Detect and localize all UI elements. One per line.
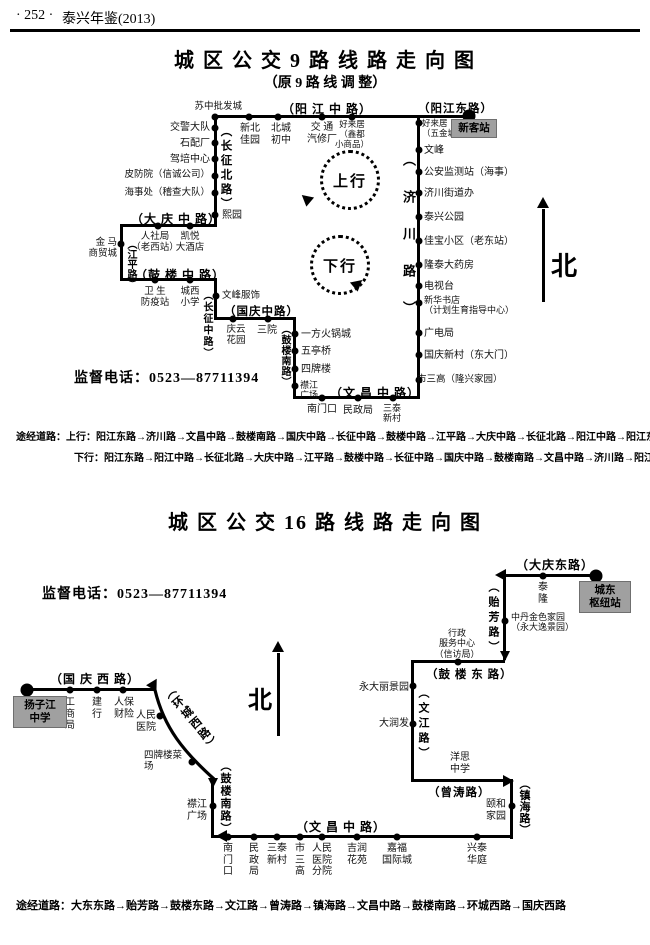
stop-shisangao-16: 市 三 高 [295, 843, 305, 878]
stop-jiafu-guojicheng: 嘉福 国际城 [382, 843, 412, 866]
stop-dot [275, 114, 282, 121]
stop-guangdianju: 广电局 [424, 328, 454, 340]
terminal-yangzijiang: 扬子江 中学 [13, 696, 67, 728]
yearbook-page: · 252 · 泰兴年鉴(2013) 城 区 公 交 9 路 线 路 走 向 图… [0, 0, 650, 945]
stop-dot [225, 834, 232, 841]
stop-dot [212, 125, 219, 132]
route9-title: 城 区 公 交 9 路 线 路 走 向 图 [0, 44, 650, 73]
stop-dot [292, 366, 299, 373]
road-label-zhenhai: （镇海路） [518, 778, 529, 836]
stop-dot [502, 618, 509, 625]
stop-renshejuj: 人社局 （老西站） [131, 232, 179, 254]
road-label-changzheng-north: （长征北路） [219, 125, 231, 212]
road-label-jichuan: （济川路） [402, 153, 415, 338]
stop-dot [189, 759, 196, 766]
stop-santai-xincun-16: 三泰 新村 [267, 843, 287, 866]
stop-haolaiju-xindu: 好来居 （鑫都 小商品） [335, 120, 369, 150]
stop-dot [416, 262, 423, 269]
stop-minzhengju-16: 民 政 局 [249, 843, 259, 878]
north-arrow-line [542, 209, 545, 302]
route9-note-up: 途经道路：上行：阳江东路→济川路→文昌中路→鼓楼南路→国庆中路→长征中路→鼓楼中… [16, 428, 650, 443]
stop-yihe-jiayuan: 颐和 家园 [486, 799, 506, 822]
stop-dot [416, 283, 423, 290]
stop-beicheng-chuzhong: 北城 初中 [271, 123, 291, 146]
stop-jinjiang-guangchang: 襟江 广场 [300, 380, 318, 401]
stop-minzhengju: 民政局 [343, 405, 373, 417]
stop-jinjiang-guangchang-16: 襟江 广场 [187, 799, 207, 822]
road-label-daqing-east: （大庆东路） [516, 556, 594, 573]
stop-xinhua-shudian: 新华书店 （计划生育指导中心） [424, 295, 514, 316]
stop-dot [251, 834, 258, 841]
stop-dot [94, 687, 101, 694]
stop-dot [474, 834, 481, 841]
stop-weisheng-fangyizhan: 卫 生 防疫站 [141, 287, 170, 309]
stop-dot [212, 190, 219, 197]
stop-dot [187, 277, 194, 284]
road-label-guoqing-west: （国 庆 西 路） [50, 670, 140, 687]
stop-dot [416, 190, 423, 197]
loop-up-circle: 上行 [320, 150, 380, 210]
stop-renmin-yiyuan-fenyuan: 人民 医院 分院 [312, 843, 332, 878]
stop-dot [390, 395, 397, 402]
stop-dot [187, 223, 194, 230]
terminal-dot [21, 684, 34, 697]
road-label-gulou-south-16: （鼓楼南路） [219, 760, 230, 835]
stop-haishichu: 海事处（稽查大队） [124, 188, 210, 199]
stop-sipailou: 四牌楼 [301, 364, 331, 376]
stop-dot [319, 834, 326, 841]
stop-dot [118, 241, 125, 248]
stop-dot [230, 316, 237, 323]
stop-taixing-gongyuan: 泰兴公园 [424, 212, 464, 224]
stop-dot [212, 212, 219, 219]
stop-dot [394, 834, 401, 841]
header-rule [10, 29, 640, 32]
route9-subtitle: （原 9 路 线 调 整） [0, 72, 650, 92]
stop-santai-xincun: 三泰 新村 [383, 403, 401, 424]
stop-suzhong-pifacheng: 苏中批发城 [194, 102, 242, 113]
stop-dianshitai: 电视台 [424, 281, 454, 293]
stop-sanyuan: 三院 [257, 325, 277, 337]
stop-zhongdan-jinse-jiayuan: 中丹金色家园 （永大逸景园） [511, 612, 574, 633]
route16-note: 途经道路：大东东路→贻芳路→鼓楼东路→文江路→曾涛路→镇海路→文昌中路→鼓楼南路… [16, 897, 566, 913]
stop-dot [509, 803, 516, 810]
route16-phone: 监督电话：0523—87711394 [42, 583, 227, 603]
road-label-changzheng-mid: （长征中路） [201, 290, 211, 359]
stop-wenfeng-fushi: 文峰服饰 [222, 291, 260, 302]
stop-dot [355, 395, 362, 402]
stop-nanmenkou: 南门口 [307, 404, 337, 416]
stop-jiabao-xiaoqu: 佳宝小区（老东站） [424, 236, 514, 248]
stop-dot [297, 834, 304, 841]
north-arrow-icon-16 [272, 641, 284, 652]
stop-dot [319, 114, 326, 121]
route9-phone: 监督电话：0523—87711394 [74, 367, 259, 387]
stop-xingtai-huating: 兴泰 华庭 [467, 843, 487, 866]
stop-dot [155, 223, 162, 230]
stop-yifang-huoguocheng: 一方火锅城 [301, 329, 351, 341]
route16-title: 城 区 公 交 16 路 线 路 走 向 图 [0, 506, 650, 535]
stop-kaiyue-dajiudian: 凯悦 大酒店 [176, 232, 205, 254]
stop-dot [213, 293, 220, 300]
road-label-daqing-mid: （大 庆 中 路） [131, 210, 221, 227]
book-title: 泰兴年鉴(2013) [62, 8, 155, 28]
stop-chengxi-xiaoxue: 城西 小学 [180, 287, 199, 309]
stop-dot [212, 156, 219, 163]
stop-dot [265, 316, 272, 323]
stop-wenfeng: 文峰 [424, 145, 444, 157]
stop-dot [210, 803, 217, 810]
stop-jichuan-jiedaoban: 济川街道办 [424, 188, 474, 200]
route-line-daqing-east [504, 574, 596, 577]
stop-jianhang: 建 行 [92, 697, 102, 720]
stop-jiaotong-qixiuchang: 交 通 汽修厂 [307, 122, 337, 145]
stop-jiaojing-dadui: 交警大队 [170, 122, 210, 134]
stop-renmin-yiyuan: 人民 医院 [136, 710, 156, 733]
stop-dot [120, 687, 127, 694]
corner-dot [212, 114, 219, 121]
stop-dot [540, 573, 547, 580]
route-line-jiangping [120, 224, 123, 281]
stop-dot [410, 683, 417, 690]
stop-dot [67, 687, 74, 694]
stop-tailong: 泰 隆 [538, 582, 548, 605]
stop-dot [416, 238, 423, 245]
road-label-zengtao: （曾涛路） [428, 784, 491, 800]
stop-dot [354, 834, 361, 841]
stop-xiyuan: 熙园 [222, 210, 242, 222]
stop-dot [455, 659, 462, 666]
road-label-gulou-south: （鼓楼南路） [279, 324, 289, 387]
road-label-wenchang-16: （文 昌 中 路） [296, 818, 386, 835]
page-number: · 252 · [16, 8, 53, 24]
stop-dot [157, 713, 164, 720]
stop-jinma-shangmaocheng: 金 马 商贸城 [88, 238, 117, 260]
stop-guoqing-xincun: 国庆新村（东大门） [424, 350, 514, 362]
stop-dot [292, 383, 299, 390]
route-line-zengtao [413, 779, 510, 782]
stop-qingyun-huayuan: 庆云 花园 [226, 325, 245, 347]
north-label: 北 [551, 246, 577, 283]
road-label-yangjiang-mid: （阳 江 中 路） [282, 100, 372, 117]
stop-dot [416, 169, 423, 176]
route-line-guoqing-west [27, 688, 156, 691]
stop-dot [274, 834, 281, 841]
stop-dot [319, 395, 326, 402]
stop-dot [246, 114, 253, 121]
terminal-xinkezhan: 新客站 [451, 119, 497, 138]
stop-dot [416, 300, 423, 307]
stop-wutingqiao: 五亭桥 [301, 346, 331, 358]
north-arrow-line-16 [277, 653, 280, 736]
stop-nanmenkou-16: 南 门 口 [223, 843, 233, 878]
stop-dot [416, 214, 423, 221]
stop-dot [152, 277, 159, 284]
loop-up-label: 上行 [333, 170, 367, 191]
stop-xingzheng-fuwu-zhongxin: 行政 服务中心 （信访局） [434, 628, 479, 659]
road-label-yifang: （贻芳路） [487, 581, 498, 656]
north-arrow-icon [537, 197, 549, 208]
stop-dot [416, 147, 423, 154]
stop-jiapei-zhongxin: 驾培中心 [170, 154, 210, 166]
stop-dot [416, 352, 423, 359]
stop-dot [416, 330, 423, 337]
stop-yangsi-zhongxue: 洋思 中学 [450, 752, 470, 775]
stop-dot [410, 721, 417, 728]
stop-gongan-jiancezhan: 公安监测站（海事） [424, 167, 514, 179]
stop-shisangao: 市三高（隆兴家园） [417, 375, 503, 386]
road-label-wenchang-mid: （文 昌 中 路） [330, 384, 420, 401]
stop-darunfa: 大润发 [379, 718, 409, 730]
terminal-chengdong: 城东 枢纽站 [579, 581, 631, 613]
stop-jirun-huayuan: 吉润 花苑 [347, 843, 367, 866]
loop-up-arrow-icon [298, 190, 314, 206]
stop-shipeichang: 石配厂 [180, 138, 210, 150]
loop-down-label: 下行 [323, 255, 357, 276]
route9-note-down: 下行：阳江东路→阳江中路→长征北路→大庆中路→江平路→鼓楼中路→长征中路→国庆中… [74, 449, 650, 464]
stop-dot [212, 140, 219, 147]
stop-renbao-caixian: 人保 财险 [114, 697, 134, 720]
north-label-16: 北 [248, 680, 272, 715]
road-label-gulou-east: （鼓 楼 东 路） [426, 666, 513, 682]
stop-xinbei-jiayuan: 新北 佳园 [240, 123, 260, 146]
stop-dot [212, 173, 219, 180]
stop-longtai-dayaofang: 隆泰大药房 [424, 260, 474, 272]
stop-yongda-lijingyuan: 永大丽景园 [359, 682, 409, 694]
road-label-yangjiang-east: （阳江东路） [418, 100, 493, 116]
stop-dot [292, 331, 299, 338]
stop-dot [292, 348, 299, 355]
stop-pifangyuan: 皮防院（信诚公司） [124, 170, 210, 181]
road-label-wenjiang: （文江路） [417, 687, 428, 762]
road-label-gulou-mid: （鼓 楼 中 路） [135, 266, 225, 283]
stop-sipailou-caichang: 四牌楼菜 场 [144, 751, 182, 773]
